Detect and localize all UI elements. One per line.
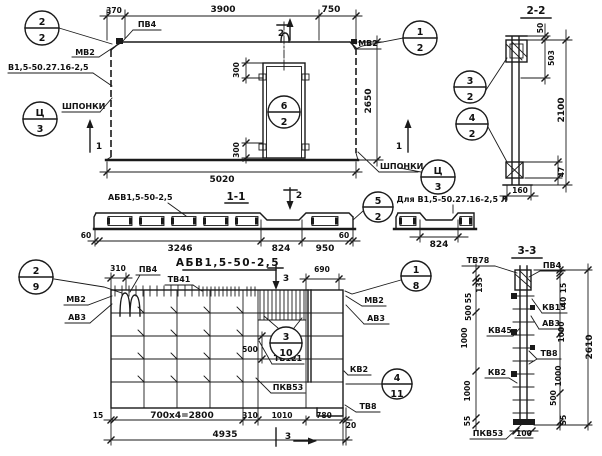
callout-sheet: 11 bbox=[390, 389, 403, 400]
callout-3-10: 3 10 bbox=[264, 316, 302, 359]
dim-door-300-bottom: 300 bbox=[232, 142, 241, 158]
dim-4935: 4935 bbox=[212, 430, 237, 440]
label-pkv53-33: ПКВ53 bbox=[473, 429, 503, 438]
section-mark-1-left: 1 bbox=[87, 119, 103, 152]
callout-2-9: 2 9 bbox=[19, 260, 122, 294]
label-mv2-left: МВ2 bbox=[75, 48, 95, 57]
dim-left-135: 135 bbox=[475, 277, 484, 293]
strip-left-version: Для В1,5-50.27.16-2,5 Л 824 bbox=[394, 195, 507, 250]
section-2-2-title: 2-2 bbox=[527, 5, 546, 17]
section-3-3-view: 3-3 ТВ78 ПВ4 КВ15 АВ3 КВ45 ТВ8 КВ2 ПКВ53… bbox=[460, 245, 595, 439]
dim-total-2610: 2610 bbox=[585, 334, 595, 359]
dim-right-1000b: 1000 bbox=[554, 366, 563, 387]
callout-num: 2 bbox=[33, 266, 40, 277]
dim-right-15: 15 bbox=[559, 283, 568, 293]
section-mark-3-bottom: 3 bbox=[276, 428, 317, 446]
label-pv4-reinf: ПВ4 bbox=[139, 265, 158, 274]
label-pv4-33: ПВ4 bbox=[543, 261, 562, 270]
dim-310-top: 310 bbox=[110, 264, 126, 273]
strip-voids bbox=[107, 217, 338, 226]
callout-sheet: 2 bbox=[467, 92, 474, 103]
reinforcement-dimensions: 310 690 500 15 700x4=2800 310 1010 780 2… bbox=[93, 264, 356, 445]
callout-top-right: 1 2 bbox=[356, 21, 437, 55]
dim-824: 824 bbox=[272, 244, 291, 254]
callout-door: 6 2 bbox=[268, 96, 300, 128]
section-mark-2-strip: 2 bbox=[284, 188, 302, 210]
dim-780: 780 bbox=[316, 411, 332, 420]
callout-5-2: 5 2 bbox=[353, 192, 393, 223]
callout-sheet: 8 bbox=[413, 281, 420, 292]
callout-sheet: 10 bbox=[279, 348, 293, 359]
label-kv2-reinf: КВ2 bbox=[350, 365, 368, 374]
callout-num: 4 bbox=[469, 113, 476, 124]
callout-num: Ц bbox=[36, 108, 45, 119]
label-pv4: ПВ4 bbox=[138, 20, 157, 29]
section-label: 2 bbox=[278, 29, 284, 39]
reinforcement-title: АБВ1,5-50-2,5 bbox=[176, 257, 280, 269]
callout-num: 5 bbox=[375, 196, 382, 207]
dim-60-right: 60 bbox=[339, 231, 349, 240]
section-label: 3 bbox=[283, 274, 289, 284]
callout-sheet: 2 bbox=[281, 117, 288, 128]
section-mark-1-right: 1 bbox=[396, 119, 412, 152]
dim-3246: 3246 bbox=[167, 244, 192, 254]
dim-right-55: 55 bbox=[559, 415, 568, 425]
label-pkv53-reinf: ПКВ53 bbox=[273, 383, 303, 392]
dim-750: 750 bbox=[322, 5, 341, 15]
callout-keys-left: Ц 3 bbox=[23, 102, 57, 136]
callout-num: 4 bbox=[394, 373, 401, 384]
reinforcement-labels: ПВ4 ТВ41 МВ2 АВ3 МВ2 АВ3 ТВ121 КВ2 ПКВ53… bbox=[64, 265, 389, 412]
label-tv8-33: ТВ8 bbox=[540, 349, 558, 358]
callout-4-2: 4 2 bbox=[456, 108, 507, 162]
dim-500: 500 bbox=[242, 345, 258, 354]
dim-950: 950 bbox=[316, 244, 335, 254]
callout-sheet: 3 bbox=[37, 124, 44, 135]
callout-sheet: 3 bbox=[435, 182, 442, 193]
dim-left-55b: 55 bbox=[463, 416, 472, 426]
dim-503: 503 bbox=[547, 50, 556, 66]
section-label: 3 bbox=[285, 432, 291, 442]
dim-door-300-top: 300 bbox=[232, 62, 241, 78]
dim-left-1000a: 1000 bbox=[460, 328, 469, 349]
dim-100: 100 bbox=[516, 429, 532, 438]
callout-sheet: 2 bbox=[417, 43, 424, 54]
dim-right-40: 40 bbox=[559, 297, 568, 307]
section-label: 1 bbox=[396, 142, 402, 152]
callout-num: 1 bbox=[413, 265, 420, 276]
section-label: 1 bbox=[96, 142, 102, 152]
callout-num: 2 bbox=[39, 17, 46, 28]
label-tv78: ТВ78 bbox=[467, 256, 490, 265]
product-mark-1-1: АБВ1,5-50-2,5 bbox=[108, 193, 173, 202]
label-tv8-reinf: ТВ8 bbox=[359, 402, 377, 411]
elevation-dimensions: 370 3900 750 5020 2650 300 300 bbox=[100, 5, 383, 185]
dim-5020: 5020 bbox=[209, 175, 234, 185]
dim-20: 20 bbox=[346, 421, 356, 430]
label-av3-left: АВ3 bbox=[68, 313, 86, 322]
dim-824-left: 824 bbox=[430, 240, 449, 250]
section-mark-2-top: 2 bbox=[277, 18, 294, 40]
engineering-drawing: 370 3900 750 5020 2650 300 300 ПВ4 МВ2 М… bbox=[0, 0, 602, 456]
dim-310-bottom: 310 bbox=[242, 411, 258, 420]
section-label: 2 bbox=[296, 191, 302, 201]
callout-top-left: 2 2 bbox=[25, 11, 112, 45]
dim-50: 50 bbox=[536, 23, 545, 33]
callout-3-2: 3 2 bbox=[454, 58, 507, 103]
dim-2100: 2100 bbox=[557, 97, 567, 122]
label-mv2-left-reinf: МВ2 bbox=[66, 295, 86, 304]
dim-15: 15 bbox=[93, 411, 103, 420]
callout-sheet: 9 bbox=[33, 282, 40, 293]
dim-left-55a: 55 bbox=[464, 293, 473, 303]
label-keys-left: ШПОНКИ bbox=[62, 102, 105, 111]
reinforcement-view: АБВ1,5-50-2,5 ПВ4 ТВ41 МВ2 АВ3 МВ2 АВ3 Т… bbox=[19, 257, 431, 446]
dim-right-500: 500 bbox=[549, 390, 558, 406]
label-product-mark: В1,5-50.27.16-2,5 bbox=[8, 63, 89, 72]
section-1-1-title: 1-1 bbox=[227, 191, 246, 203]
label-tv41: ТВ41 bbox=[168, 275, 191, 284]
dim-690: 690 bbox=[314, 265, 330, 274]
elevation-labels: ПВ4 МВ2 МВ2 В1,5-50.27.16-2,5 ШПОНКИ ШПО… bbox=[8, 20, 423, 172]
dim-160: 160 bbox=[512, 186, 528, 195]
dim-left-1000b: 1000 bbox=[463, 381, 472, 402]
callout-1-8: 1 8 bbox=[345, 261, 431, 294]
callout-num: Ц bbox=[434, 166, 443, 177]
callout-sheet: 2 bbox=[39, 33, 46, 44]
label-kv2-33: КВ2 bbox=[488, 368, 506, 377]
label-av3-right: АВ3 bbox=[367, 314, 385, 323]
dim-right-1000a: 1000 bbox=[557, 322, 566, 343]
dim-3900: 3900 bbox=[210, 5, 235, 15]
section-3-3-title: 3-3 bbox=[518, 245, 537, 257]
dim-left-500: 500 bbox=[464, 305, 473, 321]
dim-47: 47 bbox=[557, 167, 566, 177]
callout-num: 3 bbox=[467, 76, 474, 87]
callout-num: 1 bbox=[417, 27, 424, 38]
dim-700x4: 700x4=2800 bbox=[150, 411, 213, 421]
strip-left-label: Для В1,5-50.27.16-2,5 Л bbox=[397, 195, 508, 204]
section-1-1-view: АБВ1,5-50-2,5 1-1 2 60 3246 824 950 60 bbox=[81, 188, 393, 254]
callout-num: 3 bbox=[283, 332, 290, 343]
label-kv45: КВ45 bbox=[488, 326, 512, 335]
section-2-2-view: 2-2 50 503 2100 160 47 3 2 4 2 bbox=[454, 5, 572, 200]
callout-sheet: 2 bbox=[375, 212, 382, 223]
dim-1010: 1010 bbox=[272, 411, 293, 420]
dim-370: 370 bbox=[106, 6, 122, 15]
elevation-view: 370 3900 750 5020 2650 300 300 ПВ4 МВ2 М… bbox=[8, 5, 455, 194]
dim-2650: 2650 bbox=[364, 88, 374, 113]
label-keys-right: ШПОНКИ bbox=[380, 162, 423, 171]
dim-60-left: 60 bbox=[81, 231, 91, 240]
drawing-sheet: 370 3900 750 5020 2650 300 300 ПВ4 МВ2 М… bbox=[0, 0, 602, 456]
callout-num: 6 bbox=[281, 101, 288, 112]
label-mv2-right-reinf: МВ2 bbox=[364, 296, 384, 305]
callout-sheet: 2 bbox=[469, 129, 476, 140]
